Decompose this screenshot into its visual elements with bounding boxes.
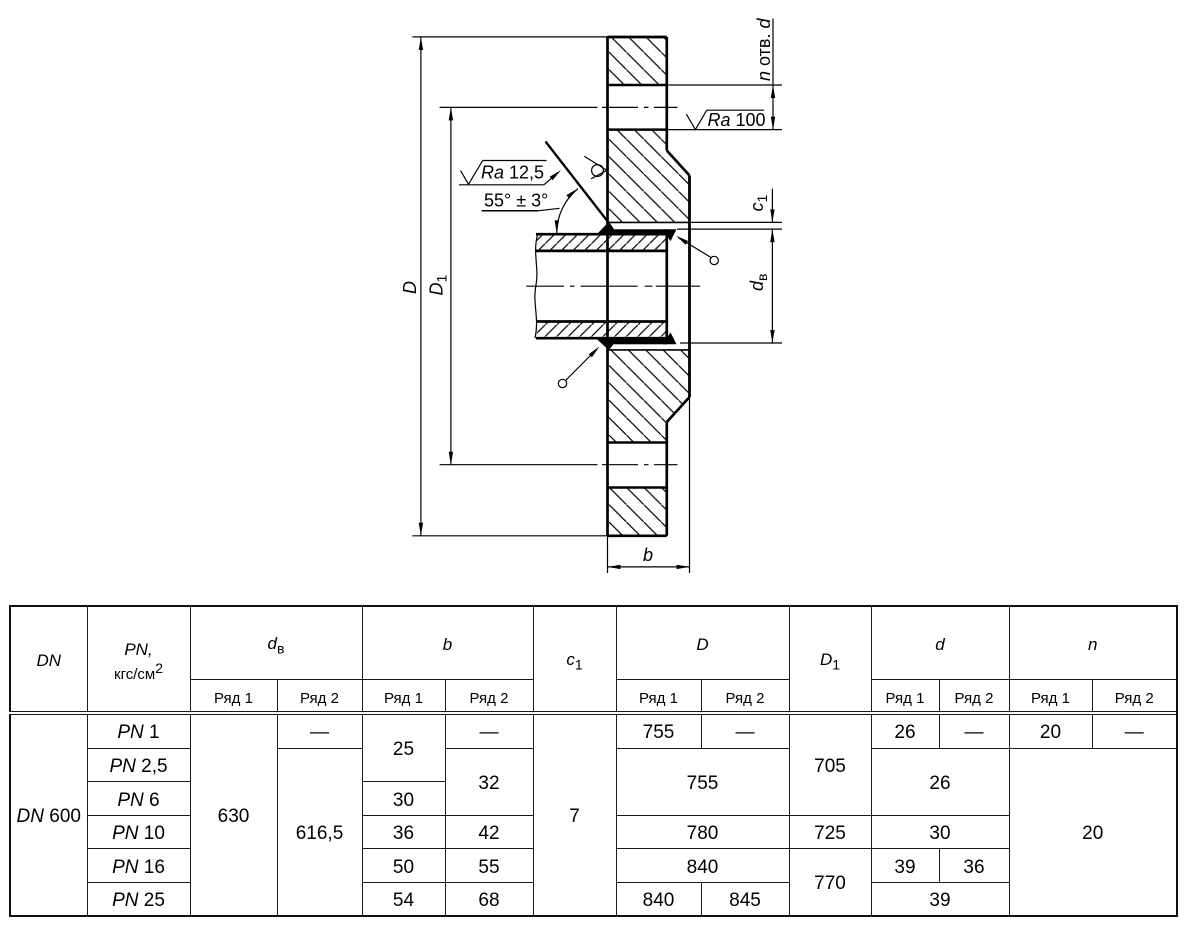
svg-text:b: b	[643, 545, 653, 565]
svg-text:55° ± 3°: 55° ± 3°	[484, 191, 548, 211]
svg-text:D: D	[400, 281, 420, 294]
svg-text:n отв. d: n отв. d	[754, 18, 774, 81]
svg-text:Ra 100: Ra 100	[708, 110, 766, 130]
svg-text:D1: D1	[427, 275, 450, 296]
svg-text:Ra 12,5: Ra 12,5	[481, 163, 544, 183]
svg-text:c1: c1	[747, 195, 770, 212]
svg-text:dв: dв	[747, 274, 770, 291]
